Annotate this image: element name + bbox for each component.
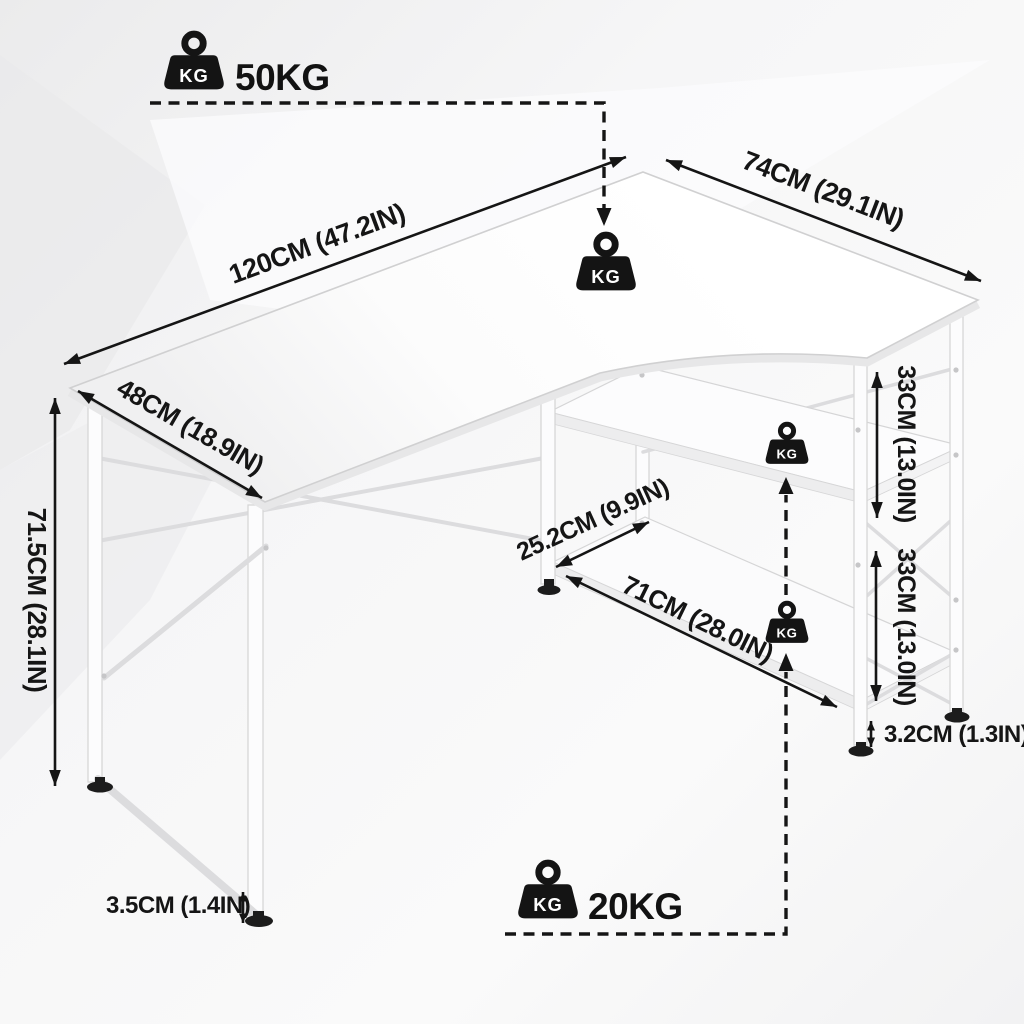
product-dimension-diagram: KG 50KG KG KG 20KG KG (0, 0, 1024, 1024)
desk-leg (88, 392, 102, 782)
shelf-leg (854, 360, 867, 745)
dimension-label: 71.5CM (28.1IN) (22, 508, 52, 693)
adjustable-foot (538, 585, 561, 595)
desk-diagram-canvas: KG 50KG KG KG 20KG KG (0, 0, 1024, 1024)
background (0, 0, 1024, 1024)
dimension-label: 3.2CM (1.3IN) (884, 721, 1024, 748)
dimension-label: 3.5CM (1.4IN) (106, 892, 250, 919)
kg-icon-label: KG (776, 626, 797, 641)
kg-icon-label: KG (179, 65, 208, 86)
desk-leg (248, 505, 263, 915)
dimension-label: 33CM (13.0IN) (892, 365, 920, 523)
adjustable-foot (849, 746, 874, 757)
desktop-capacity-label: 50KG (235, 57, 330, 98)
dim-board-thickness: 3.2CM (1.3IN) (871, 721, 1024, 748)
foot-stem (544, 579, 554, 586)
dim-foot-height: 3.5CM (1.4IN) (106, 892, 250, 923)
kg-icon-label: KG (533, 894, 562, 915)
adjustable-foot (87, 782, 113, 793)
dimension-label: 33CM (13.0IN) (892, 548, 920, 706)
shelf-capacity-label: 20KG (588, 886, 683, 927)
kg-icon-label: KG (591, 266, 620, 287)
kg-icon-label: KG (776, 447, 797, 462)
